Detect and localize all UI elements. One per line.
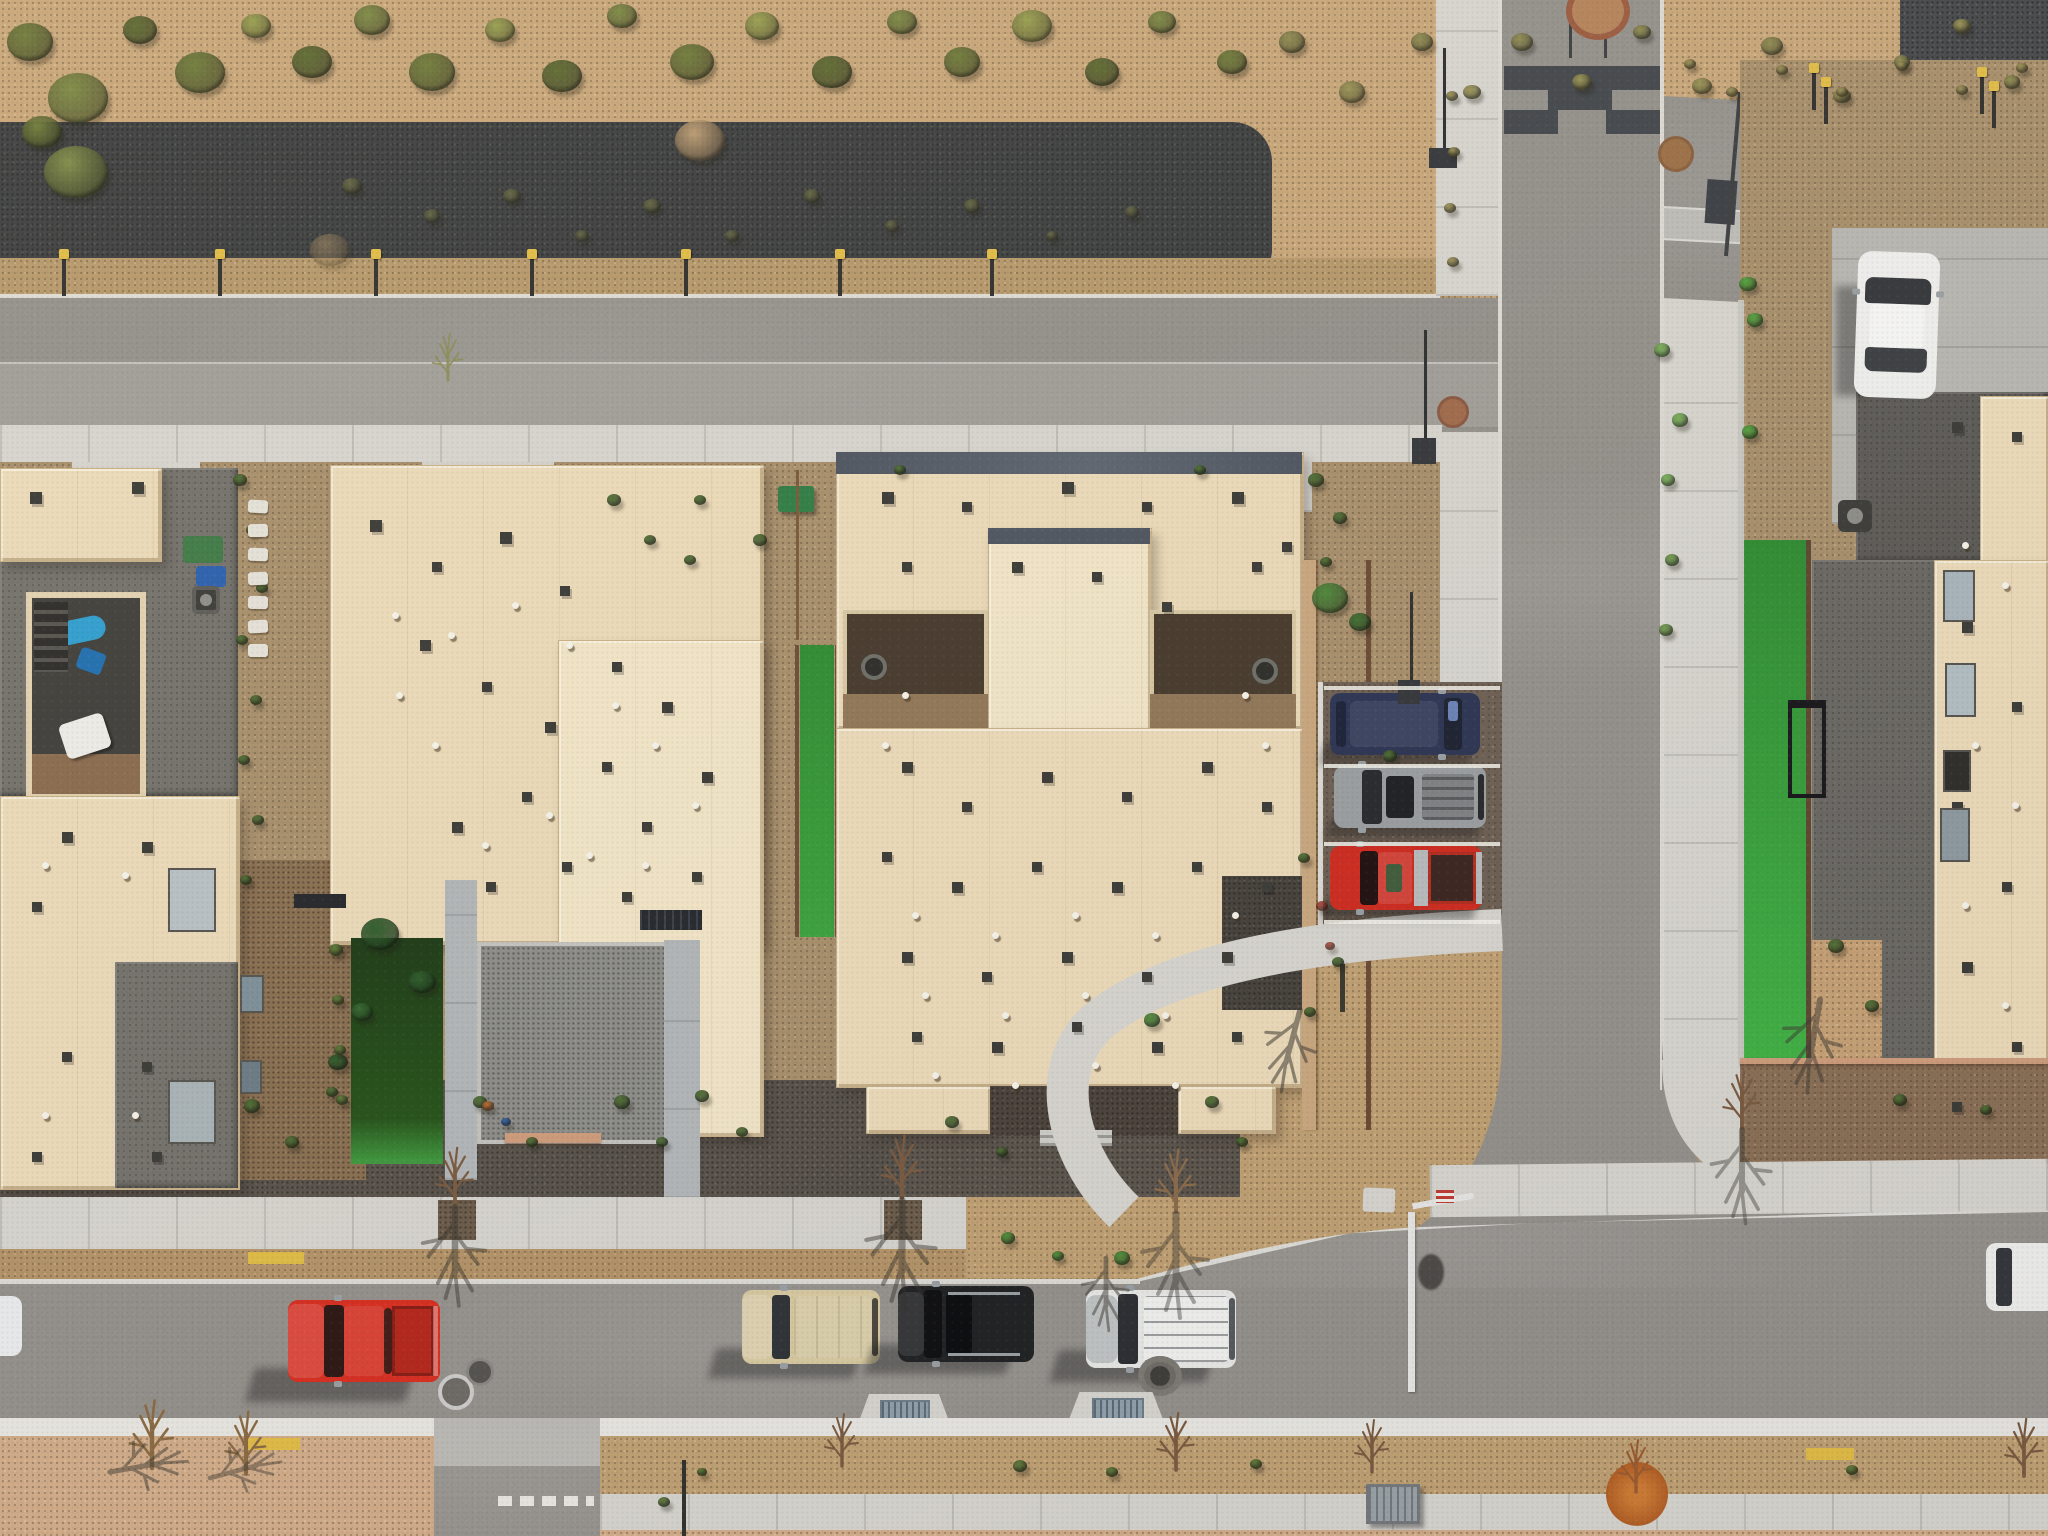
yellow-curb-paint bbox=[248, 1252, 304, 1264]
side-street-apron bbox=[434, 1418, 600, 1466]
vehicle-body bbox=[0, 1296, 22, 1356]
park-red-truck bbox=[1330, 846, 1482, 910]
corner-light-pole bbox=[682, 1460, 686, 1536]
manhole-behind-van bbox=[1138, 1356, 1182, 1396]
turf-right-fence bbox=[1806, 540, 1811, 1060]
manhole-pair-dark bbox=[466, 1358, 494, 1386]
hvac-right-cluster bbox=[1838, 500, 1872, 532]
stair-rail-black bbox=[1788, 700, 1826, 798]
side-street-stopbar bbox=[498, 1496, 594, 1506]
right-front-wall bbox=[1740, 1058, 2048, 1064]
tree-well-1 bbox=[438, 1200, 476, 1240]
turf-strip-right bbox=[1744, 540, 1806, 1060]
walk-pole-2 bbox=[1424, 330, 1427, 440]
yellow-curb-paint bbox=[1806, 1448, 1854, 1460]
curb-yellow-right bbox=[1806, 1448, 1854, 1460]
curb-yellow-corner bbox=[246, 1438, 300, 1450]
bottom-gravel-pink-edge bbox=[600, 1530, 2048, 1536]
bottom-sidewalk bbox=[600, 1494, 2048, 1532]
flag-paint bbox=[1436, 1190, 1454, 1203]
curb-yellow-north bbox=[248, 1252, 304, 1264]
south-curb-right bbox=[600, 1418, 2048, 1436]
turf-right-paint bbox=[1744, 540, 1806, 1060]
right-bldg-A-cream bbox=[1980, 396, 2048, 564]
utility-grate-box bbox=[1366, 1484, 1420, 1524]
orange-tree-foliage bbox=[1606, 1462, 1668, 1526]
orange-tree-paint bbox=[1606, 1462, 1668, 1526]
street-white-car-edge bbox=[1986, 1243, 2048, 1311]
street-red-pickup bbox=[288, 1300, 440, 1382]
walk-pole-3 bbox=[1410, 592, 1413, 684]
tree-well-2 bbox=[884, 1200, 922, 1240]
street-white-car-left bbox=[0, 1296, 22, 1356]
bottom-gravel-pink-left bbox=[0, 1436, 434, 1536]
street-light-ball-shadow bbox=[1418, 1254, 1444, 1290]
driveway-white-sedan bbox=[1853, 251, 1940, 400]
right-sand-patch bbox=[1812, 940, 1882, 1060]
walk-pole-2-head bbox=[1412, 438, 1436, 464]
aerial-photo bbox=[0, 0, 2048, 1536]
right-lower-sidewalk bbox=[1430, 1159, 2048, 1217]
pole-flag bbox=[1436, 1190, 1454, 1203]
street-black-suv bbox=[898, 1286, 1034, 1362]
walk-pole-1-head bbox=[1429, 148, 1457, 168]
park-gray-suv bbox=[1334, 766, 1486, 828]
right-front-yards bbox=[1740, 1060, 2048, 1164]
yellow-curb-paint bbox=[246, 1438, 300, 1450]
lower-street-north-curb bbox=[0, 1279, 1140, 1284]
south-curb-left bbox=[0, 1418, 434, 1436]
walk-pole-1 bbox=[1443, 48, 1446, 148]
walk-pole-3-head bbox=[1398, 680, 1420, 704]
lower-sidewalk-left bbox=[0, 1197, 966, 1249]
bottom-gravel-tan bbox=[600, 1436, 2048, 1496]
street-light-pole bbox=[1408, 1212, 1415, 1392]
street-tan-van bbox=[742, 1290, 880, 1364]
